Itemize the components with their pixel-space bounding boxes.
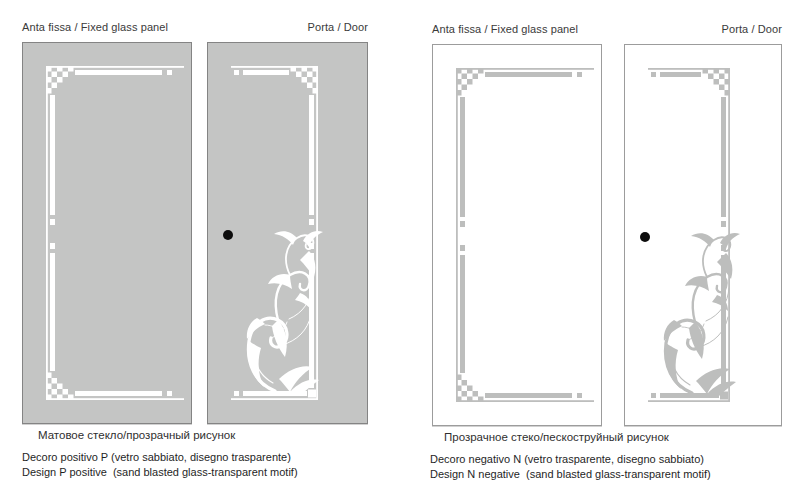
door-panel xyxy=(624,44,782,426)
catalog-page: { "sets": [ { "fixed_panel_label": "Anta… xyxy=(0,0,800,499)
door-handle-dot xyxy=(223,230,233,240)
door-label: Porta / Door xyxy=(624,23,782,35)
decor-line-en: Design N negative (sand blasted glass-tr… xyxy=(430,467,711,482)
etched-motif-drawing xyxy=(625,45,781,425)
decor-line-en: Design P positive (sand blasted glass-tr… xyxy=(22,465,298,480)
glass-note-ru: Матовое стекло/прозрачный рисунок xyxy=(38,429,235,441)
door-panel xyxy=(207,42,368,424)
fixed-panel-label: Anta fissa / Fixed glass panel xyxy=(22,21,168,33)
door-label: Porta / Door xyxy=(207,21,368,33)
door-handle-dot xyxy=(640,232,650,242)
fixed-glass-panel xyxy=(22,42,192,424)
glass-note-ru: Прозрачное стеко/пескоструйный рисунок xyxy=(444,431,669,443)
etched-motif-drawing xyxy=(208,43,367,423)
design-set-positive: Anta fissa / Fixed glass panel Porta / D… xyxy=(0,0,400,499)
etched-motif-drawing xyxy=(23,43,191,423)
fixed-panel-label: Anta fissa / Fixed glass panel xyxy=(432,23,578,35)
decor-line-it: Decoro negativo N (vetro trasparente, di… xyxy=(430,452,704,467)
decor-line-it: Decoro positivo P (vetro sabbiato, diseg… xyxy=(22,450,291,465)
design-set-negative: Anta fissa / Fixed glass panel Porta / D… xyxy=(400,0,800,499)
etched-motif-drawing xyxy=(433,45,601,425)
fixed-glass-panel xyxy=(432,44,602,426)
